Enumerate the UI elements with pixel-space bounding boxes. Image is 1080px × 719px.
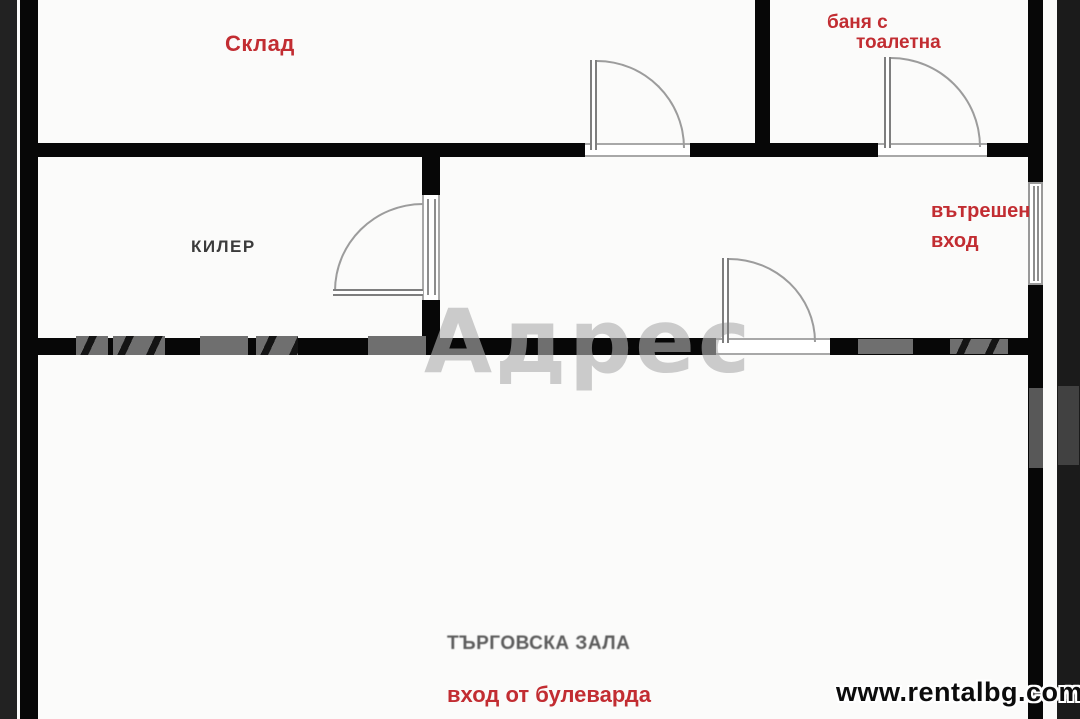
- room-label-sklad: Склад: [225, 31, 295, 57]
- room-label-banya-line2: тоалетна: [856, 33, 941, 53]
- watermark-fragment: [1058, 386, 1079, 465]
- wall-divider-left: [38, 143, 585, 157]
- wall-outer-left: [20, 0, 38, 719]
- watermark-fragment: [256, 336, 298, 355]
- kiler-door-arc: [334, 203, 423, 291]
- photo-border-left: [0, 0, 17, 719]
- watermark-fragment: [368, 336, 426, 355]
- wall-kiler-upper: [422, 157, 440, 195]
- site-url: www.rentalbg.com: [836, 677, 1080, 708]
- photo-border-right: [1057, 0, 1080, 719]
- internal-entrance-jamb: [1033, 186, 1039, 281]
- room-label-hall: ТЪРГОВСКА ЗАЛА: [447, 633, 630, 655]
- kiler-door-jamb: [427, 199, 436, 295]
- wall-partition-sklad-banya: [755, 0, 770, 157]
- watermark-fragment: [950, 339, 1008, 354]
- wall-outer-right-upper: [1028, 0, 1043, 182]
- floorplan-canvas: Адрес Адрес Склад баня с тоалетна КИЛЕР …: [0, 0, 1080, 719]
- sklad-door-leaf: [590, 60, 597, 150]
- label-internal-entrance-line2: вход: [931, 226, 1030, 256]
- room-label-kiler: КИЛЕР: [191, 237, 256, 257]
- sklad-door-arc: [597, 60, 685, 148]
- banya-door-arc: [891, 57, 981, 147]
- watermark-fragment: [113, 336, 165, 355]
- watermark-fragment: [200, 336, 248, 355]
- room-label-banya-line1: баня с: [827, 13, 941, 33]
- watermark-text-highlight: Адрес: [424, 290, 753, 393]
- room-label-banya: баня с тоалетна: [827, 13, 941, 53]
- watermark-fragment: [858, 339, 913, 354]
- banya-door-leaf: [884, 57, 891, 148]
- kiler-door-leaf: [333, 289, 423, 296]
- label-internal-entrance-line1: вътрешен: [931, 196, 1030, 226]
- kiler-door-opening: [422, 195, 440, 300]
- label-internal-entrance: вътрешен вход: [931, 196, 1030, 256]
- label-hall-entrance: вход от булеварда: [447, 682, 651, 708]
- wall-divider-middle: [690, 143, 878, 157]
- watermark-fragment: [76, 336, 108, 355]
- watermark-fragment: [1029, 388, 1043, 468]
